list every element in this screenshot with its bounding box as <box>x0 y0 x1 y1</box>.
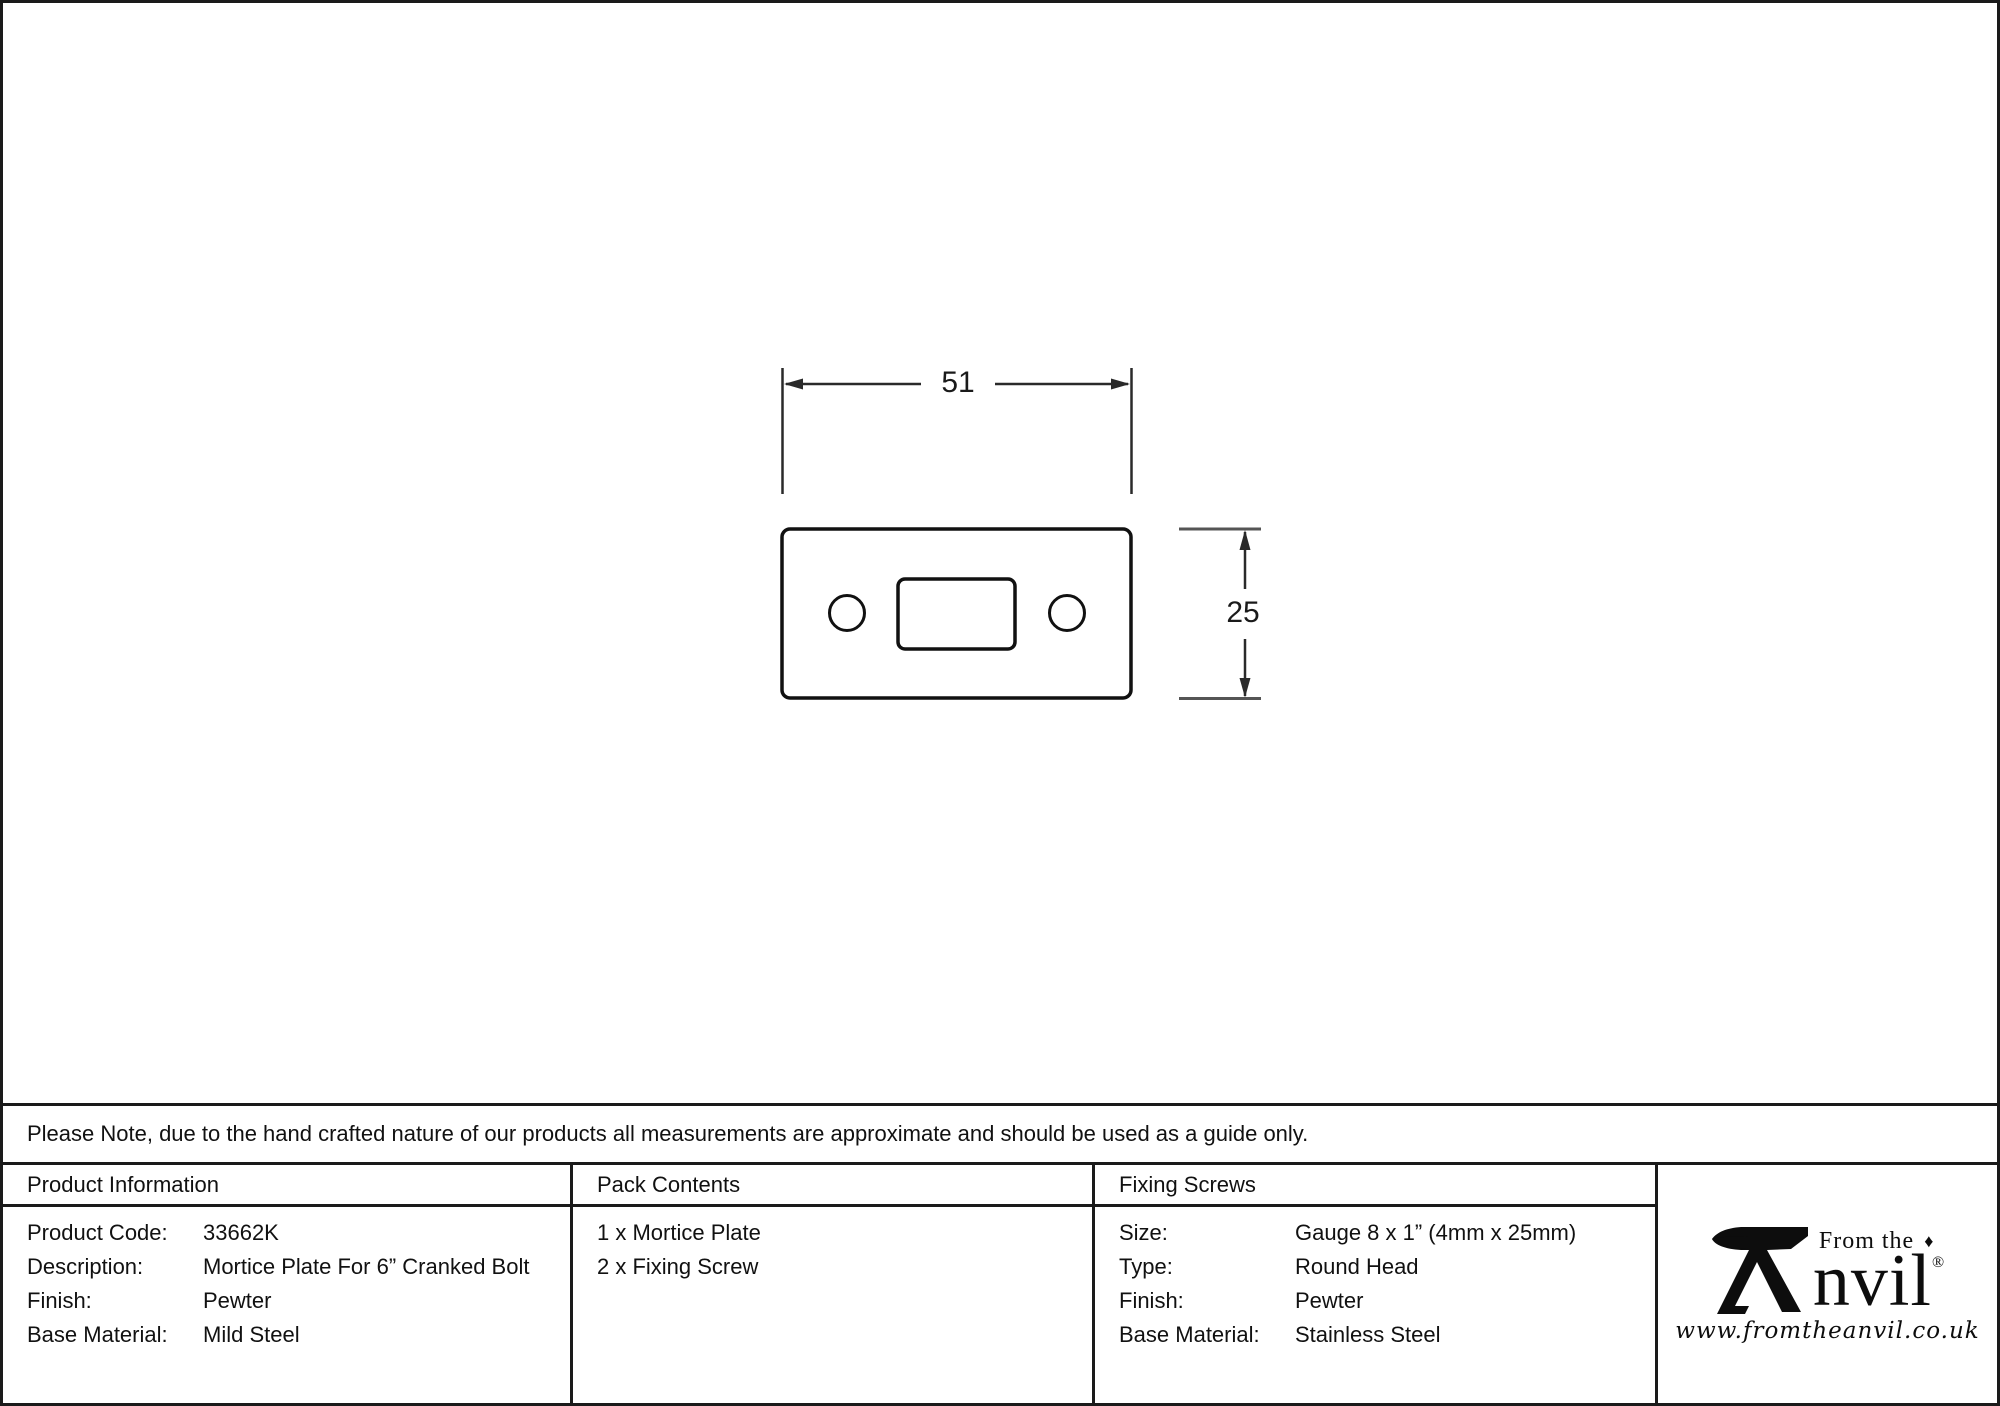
fixing-screws-section: Fixing Screws Size: Gauge 8 x 1” (4mm x … <box>1092 1165 1655 1403</box>
fixing-screws-body: Size: Gauge 8 x 1” (4mm x 25mm) Type: Ro… <box>1095 1207 1655 1352</box>
row-label: Base Material: <box>27 1318 203 1352</box>
width-dimension-label: 51 <box>935 366 980 400</box>
row-value: Gauge 8 x 1” (4mm x 25mm) <box>1295 1216 1576 1250</box>
product-information-body: Product Code: 33662K Description: Mortic… <box>3 1207 570 1352</box>
list-item: 2 x Fixing Screw <box>597 1250 1092 1284</box>
row-value: Stainless Steel <box>1295 1318 1441 1352</box>
row-value: Pewter <box>1295 1284 1363 1318</box>
row-value: 33662K <box>203 1216 279 1250</box>
pack-contents-header: Pack Contents <box>573 1165 1092 1207</box>
height-dimension-label: 25 <box>1220 596 1265 630</box>
table-row: Finish: Pewter <box>1119 1284 1655 1318</box>
row-label: Finish: <box>1119 1284 1295 1318</box>
row-value: Mortice Plate For 6” Cranked Bolt <box>203 1250 529 1284</box>
table-row: Base Material: Stainless Steel <box>1119 1318 1655 1352</box>
row-label: Size: <box>1119 1216 1295 1250</box>
registered-mark: ® <box>1932 1254 1944 1271</box>
anvil-logo: From the ♦ nvil® www.fromtheanvil.co.uk <box>1675 1224 1979 1344</box>
fixing-screws-header: Fixing Screws <box>1095 1165 1655 1207</box>
row-label: Type: <box>1119 1250 1295 1284</box>
info-tables: Product Information Product Code: 33662K… <box>3 1165 1997 1403</box>
logo-name: nvil® <box>1813 1249 1944 1314</box>
row-label: Product Code: <box>27 1216 203 1250</box>
logo-url: www.fromtheanvil.co.uk <box>1675 1318 1979 1344</box>
row-value: Mild Steel <box>203 1318 300 1352</box>
anvil-logo-text: From the ♦ nvil® <box>1813 1228 1944 1314</box>
row-label: Description: <box>27 1250 203 1284</box>
anvil-icon <box>1711 1224 1811 1314</box>
brand-logo-cell: From the ♦ nvil® www.fromtheanvil.co.uk <box>1655 1165 1997 1403</box>
pack-contents-section: Pack Contents 1 x Mortice Plate 2 x Fixi… <box>570 1165 1092 1403</box>
table-row: Base Material: Mild Steel <box>27 1318 570 1352</box>
product-information-section: Product Information Product Code: 33662K… <box>3 1165 570 1403</box>
note-text: Please Note, due to the hand crafted nat… <box>27 1121 1308 1147</box>
row-label: Base Material: <box>1119 1318 1295 1352</box>
anvil-logo-row: From the ♦ nvil® <box>1711 1224 1944 1314</box>
product-spec-sheet: 51 25 Please Note, due to the hand craft… <box>0 0 2000 1406</box>
mortice-plate-drawing <box>3 3 2000 1103</box>
table-row: Product Code: 33662K <box>27 1216 570 1250</box>
product-information-header: Product Information <box>3 1165 570 1207</box>
table-row: Type: Round Head <box>1119 1250 1655 1284</box>
pack-contents-body: 1 x Mortice Plate 2 x Fixing Screw <box>573 1207 1092 1284</box>
note-bar: Please Note, due to the hand crafted nat… <box>3 1103 1997 1165</box>
mortice-plate-shape <box>782 529 1131 698</box>
list-item: 1 x Mortice Plate <box>597 1216 1092 1250</box>
table-row: Description: Mortice Plate For 6” Cranke… <box>27 1250 570 1284</box>
table-row: Size: Gauge 8 x 1” (4mm x 25mm) <box>1119 1216 1655 1250</box>
row-label: Finish: <box>27 1284 203 1318</box>
row-value: Round Head <box>1295 1250 1419 1284</box>
technical-drawing-area: 51 25 <box>3 3 1997 1103</box>
logo-name-text: nvil <box>1813 1240 1932 1322</box>
table-row: Finish: Pewter <box>27 1284 570 1318</box>
row-value: Pewter <box>203 1284 271 1318</box>
